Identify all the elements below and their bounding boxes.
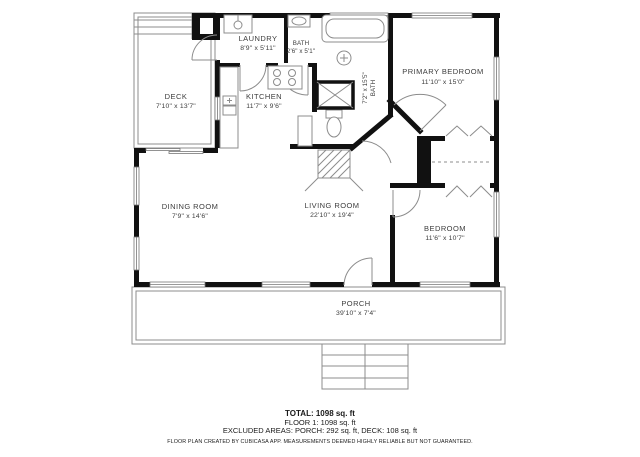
room-label-kitchen: KITCHEN 11'7" x 9'6": [246, 92, 282, 110]
window: [134, 167, 139, 205]
svg-text:11'7" x 9'6": 11'7" x 9'6": [246, 103, 282, 110]
floor-plan-drawing: LAUNDRY 8'9" x 5'11" BATH 2'6" x 5'1" BA…: [0, 0, 640, 400]
room-label-laundry: LAUNDRY 8'9" x 5'11": [239, 34, 278, 52]
svg-text:8'9" x 5'11": 8'9" x 5'11": [240, 45, 276, 52]
window: [420, 282, 470, 287]
disclaimer-text: FLOOR PLAN CREATED BY CUBICASA APP. MEAS…: [0, 439, 640, 445]
room-label-deck: DECK 7'10" x 13'7": [156, 92, 196, 110]
room-label-primary-bedroom: PRIMARY BEDROOM 11'10" x 15'0": [402, 67, 484, 86]
room-label-bath-small: BATH 2'6" x 5'1": [287, 40, 315, 55]
svg-text:2'6" x 5'1": 2'6" x 5'1": [287, 48, 315, 55]
room-label-living-room: LIVING ROOM 22'10" x 19'4": [305, 201, 360, 219]
laundry-sink: [224, 15, 252, 33]
total-area-text: TOTAL: 1098 sq. ft: [0, 409, 640, 418]
toilet: [326, 110, 342, 137]
porch-steps: [322, 344, 408, 389]
windows: [134, 13, 499, 287]
svg-text:LIVING ROOM: LIVING ROOM: [305, 201, 360, 210]
svg-text:7'2" x 15'5": 7'2" x 15'5": [362, 72, 369, 104]
window: [150, 282, 205, 287]
room-label-porch: PORCH 39'10" x 7'4": [336, 299, 376, 317]
svg-text:PRIMARY BEDROOM: PRIMARY BEDROOM: [402, 67, 484, 76]
room-label-bedroom: BEDROOM 11'6" x 10'7": [424, 224, 466, 242]
svg-text:BEDROOM: BEDROOM: [424, 224, 466, 233]
svg-text:39'10" x 7'4": 39'10" x 7'4": [336, 310, 376, 317]
svg-text:PORCH: PORCH: [341, 299, 370, 308]
svg-text:11'6" x 10'7": 11'6" x 10'7": [425, 235, 465, 242]
room-labels: LAUNDRY 8'9" x 5'11" BATH 2'6" x 5'1" BA…: [156, 34, 484, 317]
excluded-areas-text: EXCLUDED AREAS: PORCH: 292 sq. ft, DECK:…: [0, 426, 640, 435]
svg-text:7'9" x 14'6": 7'9" x 14'6": [172, 213, 208, 220]
window: [134, 237, 139, 270]
floor-plan-page: LAUNDRY 8'9" x 5'11" BATH 2'6" x 5'1" BA…: [0, 0, 640, 457]
room-label-dining-room: DINING ROOM 7'9" x 14'6": [162, 202, 219, 220]
powder-sink: [288, 15, 310, 27]
sliding-door: [146, 149, 203, 154]
svg-text:BATH: BATH: [370, 80, 377, 96]
window: [412, 13, 472, 18]
room-label-bath-main: BATH 7'2" x 15'5": [362, 72, 377, 104]
window: [215, 97, 220, 120]
svg-text:DECK: DECK: [165, 92, 188, 101]
svg-text:BATH: BATH: [293, 40, 309, 47]
svg-text:DINING ROOM: DINING ROOM: [162, 202, 219, 211]
bath-sink: [337, 51, 351, 65]
window: [494, 192, 499, 237]
porch-structure: [132, 287, 505, 344]
walls: [134, 13, 500, 287]
svg-text:KITCHEN: KITCHEN: [246, 92, 282, 101]
svg-text:LAUNDRY: LAUNDRY: [239, 34, 278, 43]
svg-text:11'10" x 15'0": 11'10" x 15'0": [421, 79, 465, 86]
bathtub: [322, 15, 388, 42]
entry-mat: [305, 150, 363, 191]
water-heater-closet: [317, 82, 353, 108]
svg-text:7'10" x 13'7": 7'10" x 13'7": [156, 103, 196, 110]
stove: [268, 66, 302, 89]
window: [494, 57, 499, 100]
svg-text:22'10" x 19'4": 22'10" x 19'4": [310, 212, 354, 219]
window: [262, 282, 310, 287]
